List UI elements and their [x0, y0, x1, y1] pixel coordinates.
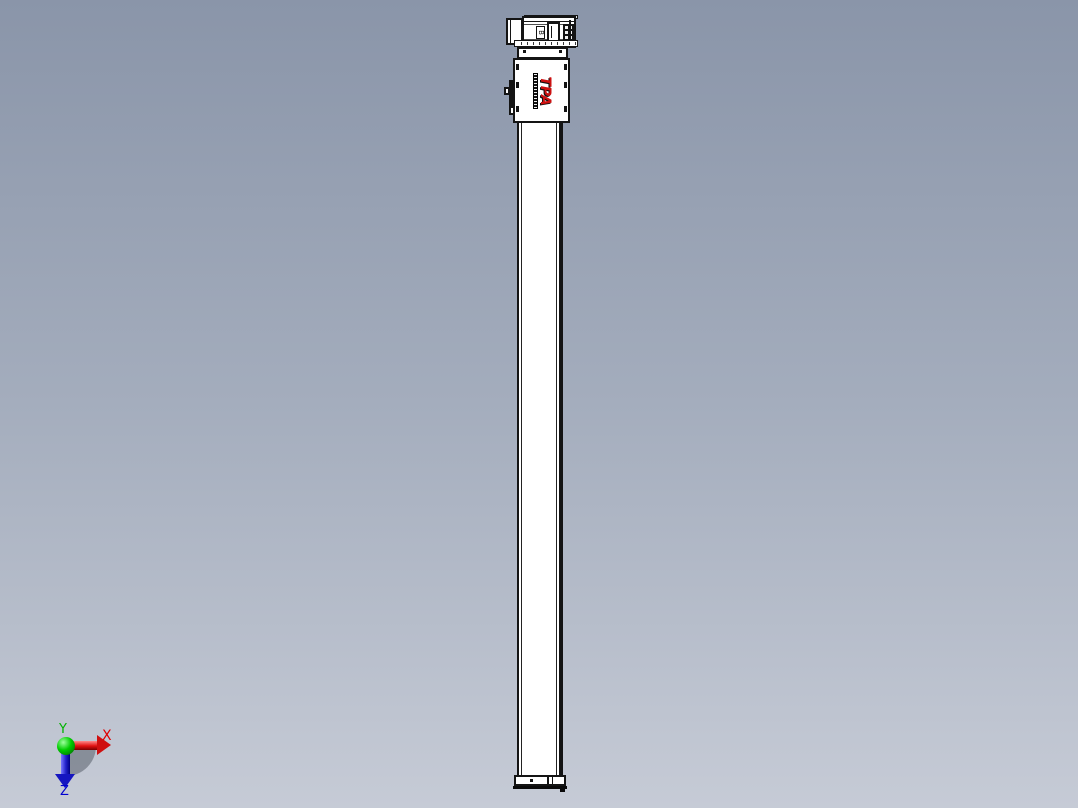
sensor-bracket	[509, 106, 515, 115]
end-cap-divider	[552, 777, 553, 784]
motor-nameplate-text: B	[537, 30, 544, 35]
adapter-screw-mark	[523, 50, 526, 53]
terminal-pin	[565, 36, 568, 39]
rail-body	[517, 123, 563, 775]
brand-logo-subtitle-strip	[533, 73, 538, 109]
motor-flange-plate	[514, 40, 578, 47]
end-cap-foot	[560, 789, 565, 792]
flange-hatch-marks	[516, 42, 576, 45]
z-axis-label: Z	[60, 784, 69, 799]
carriage-bolt-hole	[564, 64, 567, 70]
rail-inner-edge-left	[521, 123, 522, 775]
x-axis-label: X	[102, 728, 112, 744]
end-cap	[514, 775, 566, 786]
rear-cap-edge-line	[510, 20, 511, 43]
x-axis-arrow[interactable]	[71, 741, 98, 750]
carriage-block: TPA	[513, 58, 570, 123]
carriage-bolt-hole	[516, 64, 519, 70]
y-axis-origin-ball[interactable]	[57, 737, 75, 755]
terminal-pin	[565, 26, 568, 29]
carriage-bolt-hole	[564, 82, 567, 88]
motor-encoder-block	[547, 22, 560, 42]
y-axis-label: Y	[59, 722, 67, 737]
brand-logo-text: TPA	[539, 76, 551, 105]
end-cap-screw	[530, 779, 533, 782]
terminal-pin	[565, 31, 568, 34]
carriage-bolt-hole	[516, 106, 519, 112]
encoder-edge-line	[551, 26, 552, 38]
end-cap-base-bar	[513, 786, 567, 789]
adapter-screw-mark	[559, 50, 562, 53]
cad-viewport[interactable]: B	[0, 0, 1078, 808]
brand-logo: TPA	[533, 70, 551, 112]
end-cap-divider	[547, 777, 549, 784]
motor-nameplate: B	[536, 26, 545, 39]
carriage-bolt-hole	[564, 106, 567, 112]
rail-inner-edge-right	[556, 123, 557, 775]
sensor-block	[504, 87, 510, 95]
carriage-bolt-hole	[516, 82, 519, 88]
